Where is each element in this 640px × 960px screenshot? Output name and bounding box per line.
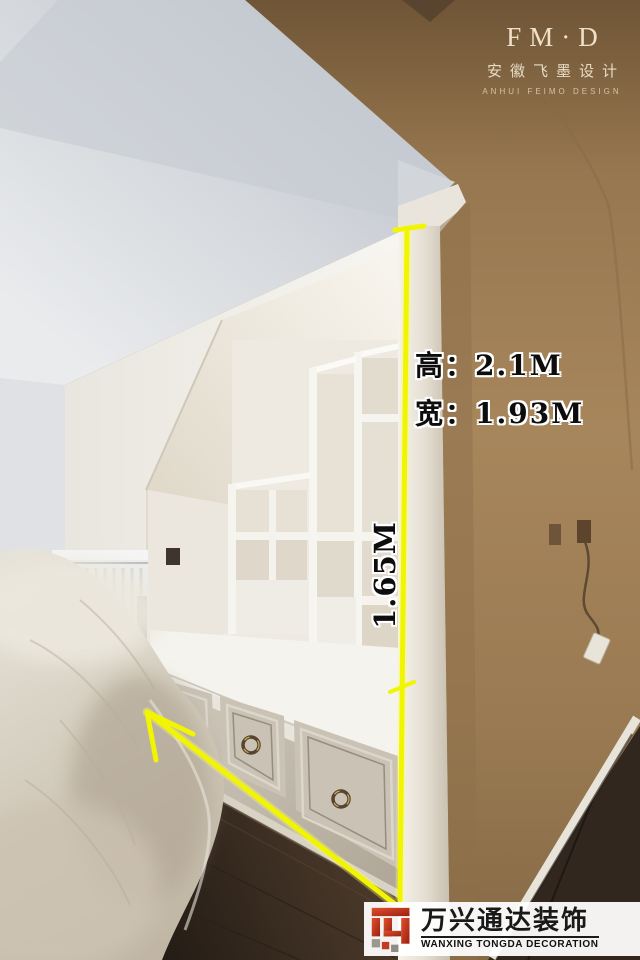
shelf-board <box>313 532 356 541</box>
watermark-logo-icon <box>369 905 415 953</box>
watermark-text: 万兴通达装饰 WANXING TONGDA DECORATION <box>421 908 599 950</box>
dimension-depth-label: 1.65M <box>368 504 398 646</box>
shelf-board <box>360 414 404 422</box>
shelf-step-face <box>232 580 309 634</box>
dimension-height-label: 高：2.1M <box>415 344 563 384</box>
wall-socket-hole <box>577 520 591 543</box>
attic-bedroom-photo: 高：2.1M 宽：1.93M 1.65M FM·D 安徽飞墨设计 ANHUI F… <box>0 0 640 960</box>
brand-english: ANHUI FEIMO DESIGN <box>472 87 632 96</box>
shelf-divider <box>269 490 276 580</box>
shelf-compartment <box>362 358 402 414</box>
shelf-compartment <box>317 541 354 597</box>
shelf-compartment <box>317 374 354 532</box>
watermark: 万兴通达装饰 WANXING TONGDA DECORATION <box>364 902 640 956</box>
wall-socket-hole <box>549 524 561 545</box>
brand-chinese: 安徽飞墨设计 <box>472 60 632 81</box>
brand-logo: FM·D 安徽飞墨设计 ANHUI FEIMO DESIGN <box>472 22 632 96</box>
shelf-step-face <box>315 597 356 645</box>
scene-graphic <box>0 0 640 960</box>
watermark-english: WANXING TONGDA DECORATION <box>421 936 599 950</box>
shelf-divider <box>309 368 317 648</box>
alcove-socket <box>166 548 180 565</box>
dimension-width-label: 宽：1.93M <box>415 392 584 432</box>
watermark-company: 万兴通达装饰 <box>421 908 599 935</box>
brand-name: FM·D <box>472 22 632 53</box>
shelf-side-panel <box>228 484 236 634</box>
